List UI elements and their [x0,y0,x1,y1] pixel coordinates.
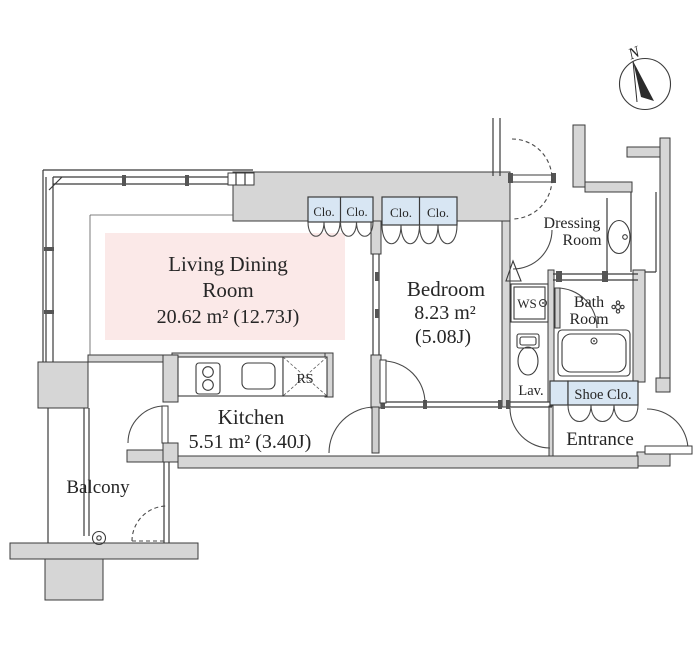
dressing-room-label-1: Dressing [544,215,601,232]
bedroom-door-arc [383,361,425,403]
washer-space-label: WS [517,296,537,311]
entrance-door-leaf [645,446,692,454]
shoe-closet-label: Shoe Clo. [574,387,631,403]
balcony-label: Balcony [66,477,130,498]
wash-basin [608,221,630,254]
toilet [517,334,539,375]
bedroom-door-leaf [380,360,386,403]
service-room-door-leaf [162,406,168,443]
closet-label-3: Clo. [390,205,412,220]
shower-icon [612,301,624,313]
bedroom-area: 8.23 m² [414,302,476,324]
vent-window [228,173,254,185]
kitchen-door-leaf [372,407,379,453]
bath-room-label-2: Room [569,311,609,328]
walls [10,125,670,600]
bath-door-leaf [555,288,560,328]
closet-label-2: Clo. [346,205,367,219]
lavatory-door [508,402,552,407]
dressing-room-label-2: Room [562,232,602,249]
service-room-door-arc [128,406,165,443]
bedroom-area-jo: (5.08J) [415,326,471,348]
kitchen-area: 5.51 m² (3.40J) [189,431,312,453]
north-compass-icon: N [620,43,671,109]
kitchen-door-arc [329,407,375,453]
entrance-label: Entrance [566,429,634,450]
floor-plan: N Living Dining Room 20.62 m² (12.73J) B… [0,0,700,650]
entrance-door-arc [647,409,688,450]
lavatory-label: Lav. [518,383,543,399]
hall-door-arc [510,408,550,448]
bathtub [558,330,630,376]
dressing-door-arc [513,230,552,269]
balcony-hatch-swing-dashed [132,506,167,541]
sliding-door-bedroom [373,254,379,355]
living-room-area: 20.62 m² (12.73J) [157,306,300,328]
north-label: N [625,43,643,64]
living-room-label-2: Room [202,278,253,302]
closet-small-box [550,381,568,405]
closet-label-1: Clo. [313,205,334,219]
floor-plan-drawing: N Living Dining Room 20.62 m² (12.73J) B… [0,0,700,650]
kitchen-label: Kitchen [218,405,285,429]
bedroom-label: Bedroom [407,277,485,301]
range-shaft-label: RS [296,372,313,387]
niche-door-leaf [511,175,553,182]
bath-room-label-1: Bath [574,294,604,311]
closet-label-4: Clo. [427,205,449,220]
living-room-label-1: Living Dining [168,252,288,276]
